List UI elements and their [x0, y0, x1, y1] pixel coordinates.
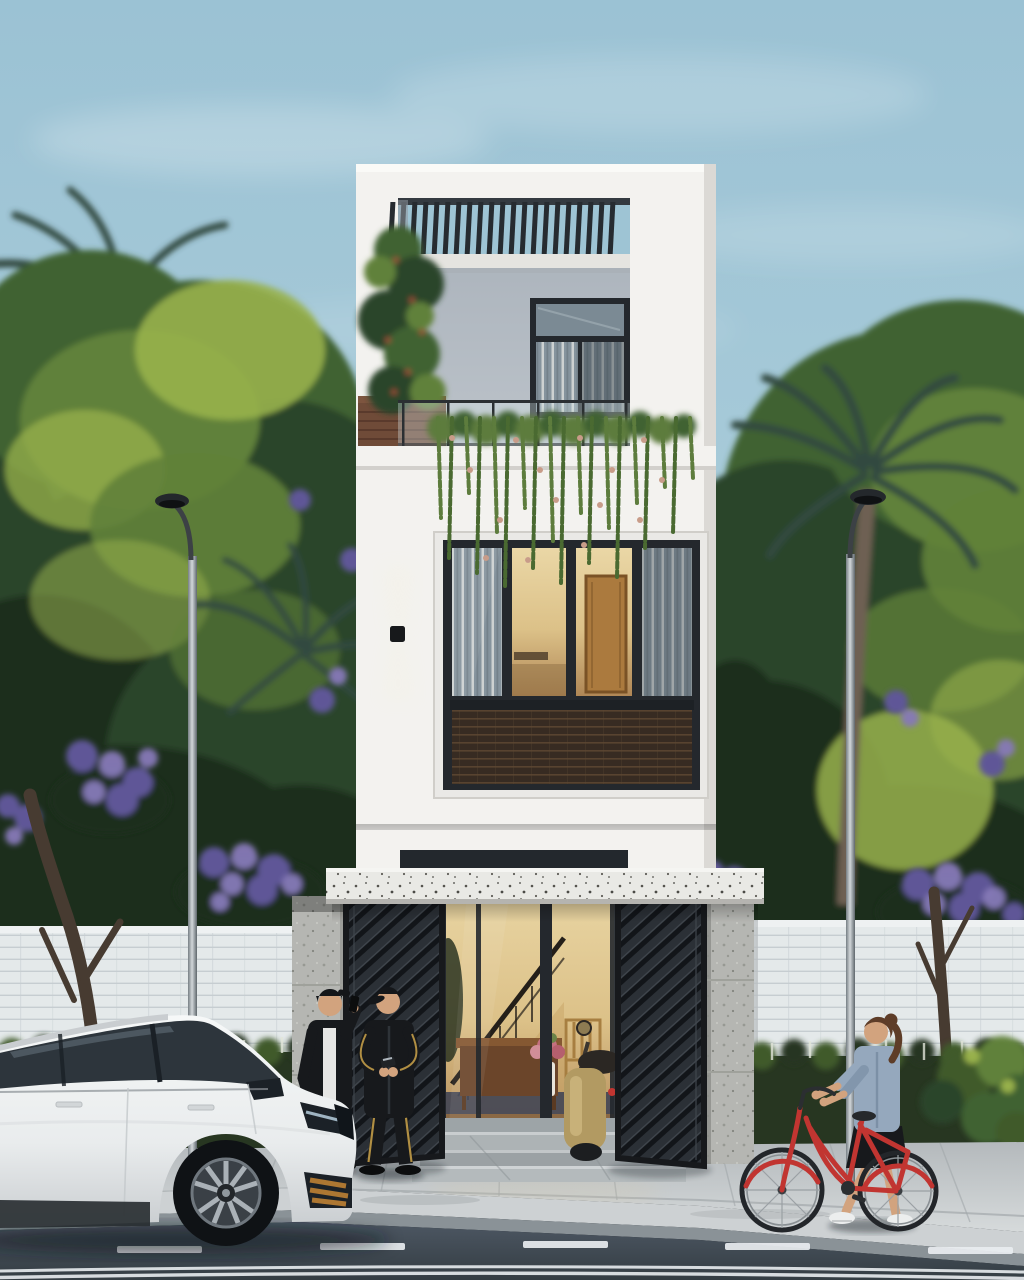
- architectural-render: Dusk architectural render: narrow three-…: [0, 0, 1024, 1280]
- rattan-spandrel: [452, 710, 692, 784]
- gate-right: [618, 892, 704, 1166]
- interior-view-door: [576, 548, 634, 696]
- scene-canvas: [0, 0, 1024, 1280]
- interior-view-left: [510, 548, 568, 696]
- second-floor: [356, 470, 716, 846]
- saddle: [852, 1111, 876, 1121]
- front-wheel: [173, 1140, 279, 1246]
- rocker-panel: [0, 1200, 150, 1228]
- ground-floor: [292, 830, 764, 1182]
- terrazzo-canopy: [326, 868, 764, 922]
- stone-pillar-right: [704, 886, 754, 1164]
- house: [292, 164, 764, 1182]
